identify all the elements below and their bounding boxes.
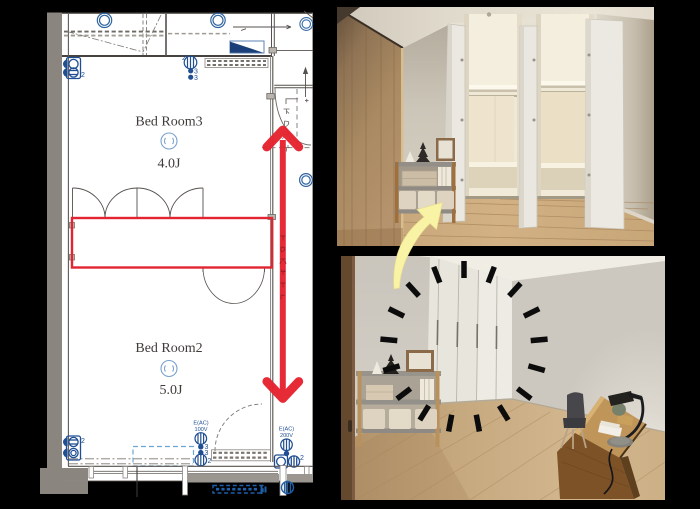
svg-text:Bed Room3: Bed Room3 <box>135 115 202 130</box>
svg-text:200V: 200V <box>280 433 293 439</box>
svg-text:4.0J: 4.0J <box>158 157 182 172</box>
svg-text:2: 2 <box>208 458 212 465</box>
svg-text:100V: 100V <box>194 427 207 433</box>
svg-text:Bed Room2: Bed Room2 <box>135 341 202 356</box>
svg-text:5.0J: 5.0J <box>160 383 184 398</box>
svg-text:E(AC): E(AC) <box>193 421 208 427</box>
svg-text:2: 2 <box>81 72 85 79</box>
svg-text:2: 2 <box>300 455 304 462</box>
svg-text:3: 3 <box>194 75 198 82</box>
svg-text:2: 2 <box>182 55 186 62</box>
svg-text:E(AC): E(AC) <box>279 427 294 433</box>
svg-text:2: 2 <box>81 438 85 445</box>
